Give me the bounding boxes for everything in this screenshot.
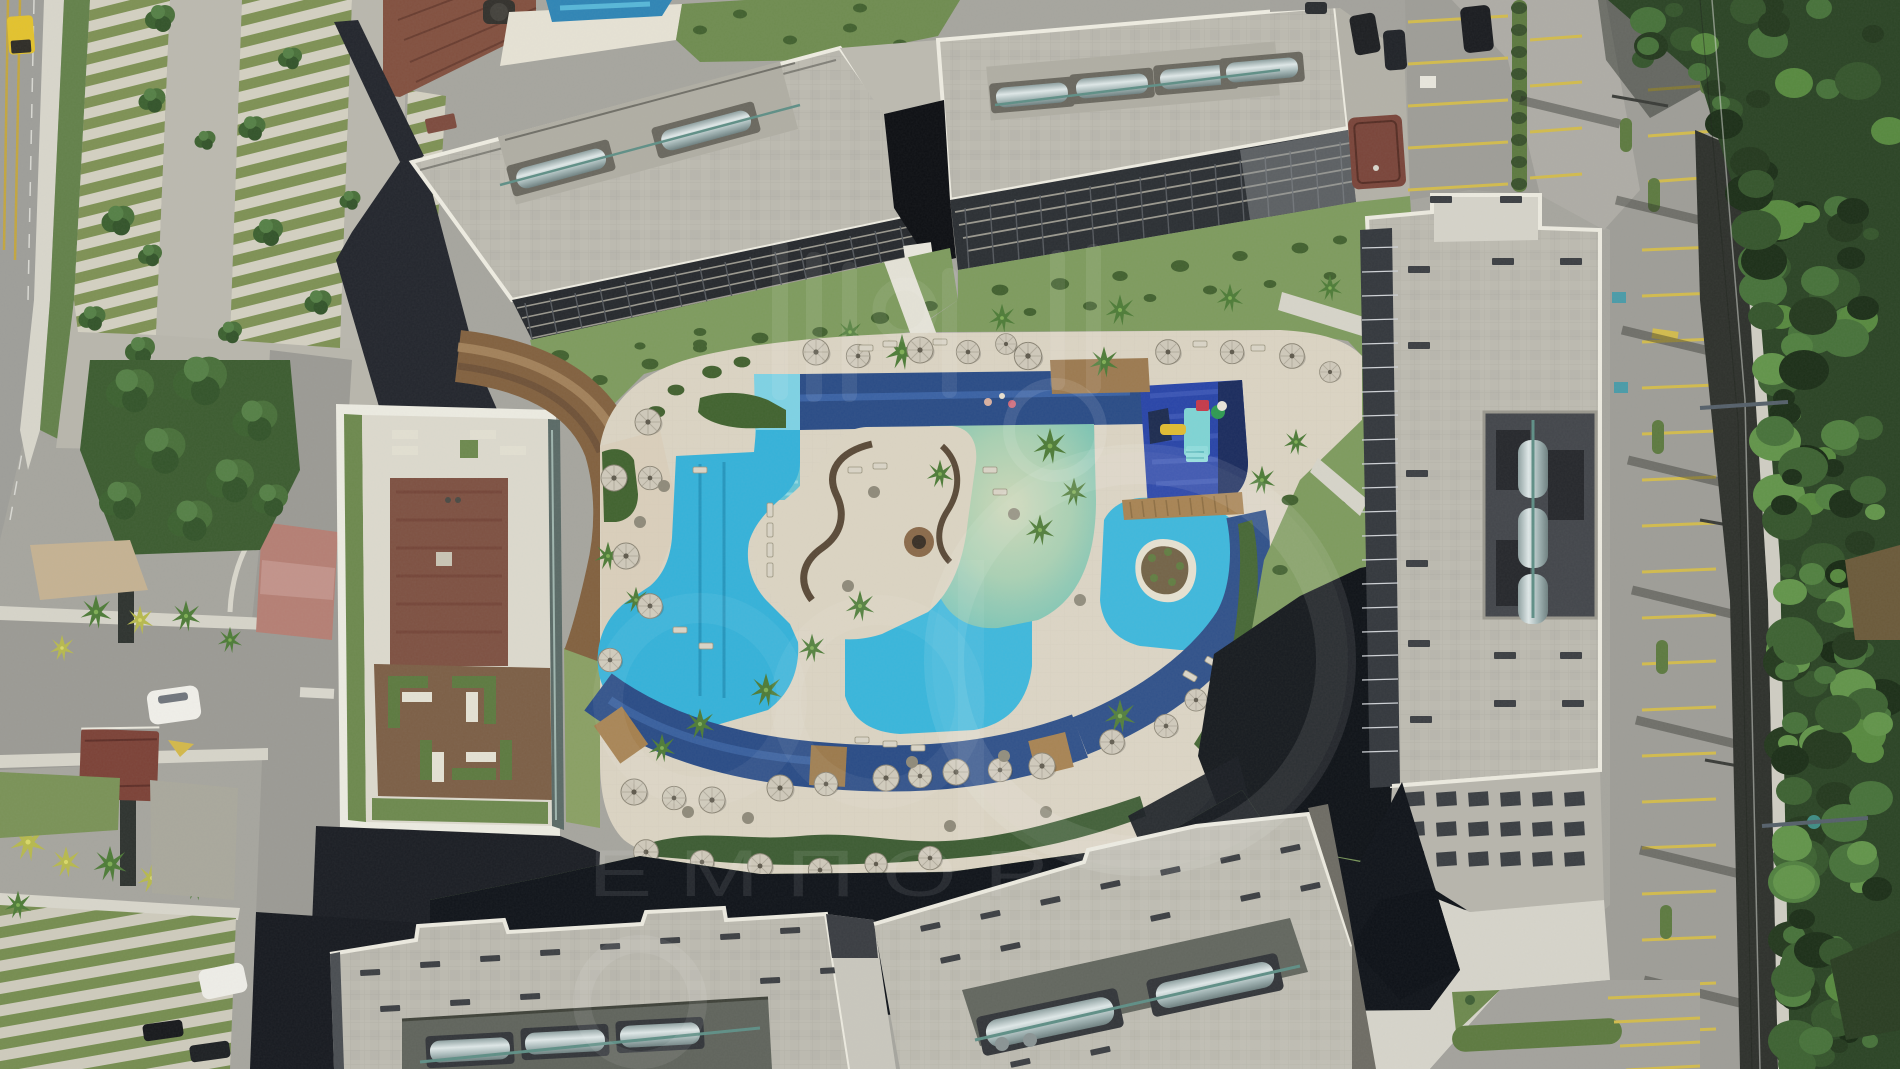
svg-text:E M П O P: E M П O P — [588, 836, 1048, 910]
